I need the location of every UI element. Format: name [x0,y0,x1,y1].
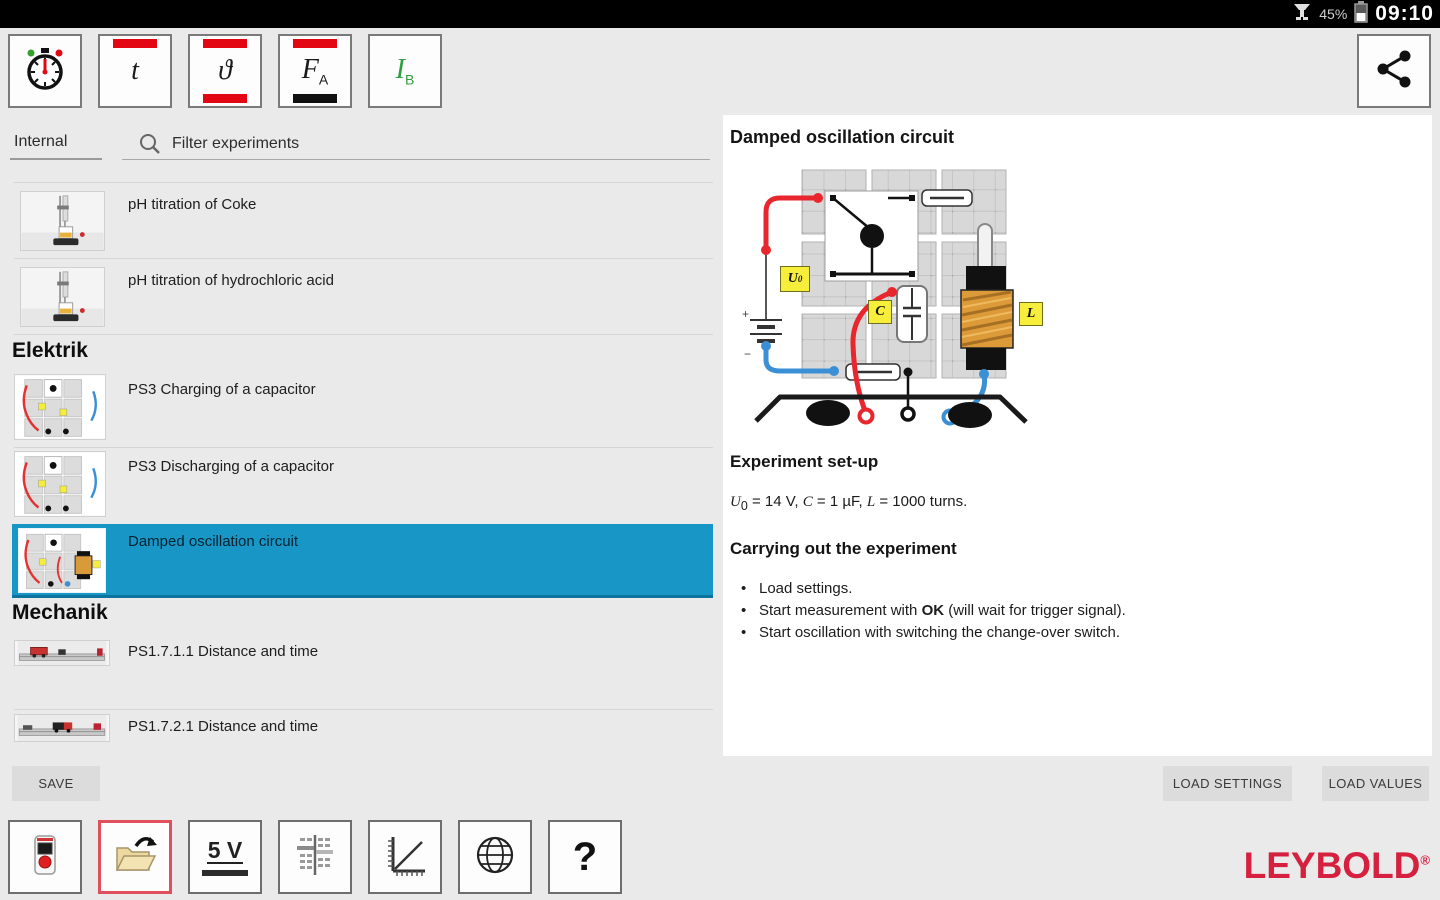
stopwatch-icon [22,46,68,97]
experiment-label: PS3 Charging of a capacitor [128,381,316,398]
experiment-thumbnail [14,374,106,440]
list-item-ph-hcl[interactable]: pH titration of hydrochloric acid [0,259,716,334]
setup-text: U0 = 14 V, C = 1 µF, L = 1000 turns. [730,493,967,513]
sensor-color-bar [203,39,247,48]
help-button[interactable]: ? [548,820,622,894]
quantity-temperature-button[interactable]: ϑ [188,34,262,108]
list-item-charging-capacitor[interactable]: PS3 Charging of a capacitor [0,371,716,447]
quantity-time-button[interactable]: t [98,34,172,108]
circuit-label-l: L [1019,302,1043,326]
sensor-color-bar [293,94,337,103]
power-supply-button[interactable]: 5 V [188,820,262,894]
sensor-color-bar [203,94,247,103]
source-tab-internal[interactable]: Internal [14,133,67,151]
circuit-label-c: C [868,300,892,324]
quantity-force-button[interactable]: FA [278,34,352,108]
experiment-thumbnail [20,191,105,251]
section-header-elektrik: Elektrik [12,339,88,363]
instruction-item: Start measurement with OK (will wait for… [737,600,1397,622]
device-button[interactable] [8,820,82,894]
search-icon [138,132,162,161]
status-cluster: 45% 09:10 [1292,0,1434,28]
svg-text:−: − [744,347,751,361]
list-item-ph-coke[interactable]: pH titration of Coke [0,183,716,258]
quantity-current-button[interactable]: IB [368,34,442,108]
experiment-label: PS3 Discharging of a capacitor [128,458,334,475]
carrying-heading: Carrying out the experiment [730,539,957,559]
sensor-color-bar [113,39,157,48]
leybold-logo: LEYBOLD® [1240,845,1430,887]
share-button[interactable] [1357,34,1431,108]
settings-button[interactable] [278,820,352,894]
circuit-label-u0: U0 [780,266,810,292]
web-button[interactable] [458,820,532,894]
stopwatch-button[interactable] [8,34,82,108]
save-button[interactable]: SAVE [12,766,100,801]
experiment-thumbnail [18,528,106,593]
load-values-button[interactable]: LOAD VALUES [1322,766,1429,801]
experiment-label: Damped oscillation circuit [128,533,298,550]
instruction-item: Start oscillation with switching the cha… [737,622,1397,644]
sensor-color-bar [293,39,337,48]
instruction-list: Load settings. Start measurement with OK… [737,578,1397,644]
cast-icon [1292,2,1312,26]
filter-experiments-input[interactable] [172,130,708,158]
experiment-thumbnail [14,714,110,742]
experiment-label: pH titration of hydrochloric acid [128,272,334,289]
quantity-force-label: FA [302,54,328,88]
open-file-button[interactable] [98,820,172,894]
status-bar: 45% 09:10 [0,0,1440,28]
globe-icon [473,833,517,882]
setup-heading: Experiment set-up [730,452,878,472]
battery-icon [1354,1,1368,28]
filter-underline [122,159,710,160]
chart-axes-icon [383,833,427,882]
load-settings-button[interactable]: LOAD SETTINGS [1163,766,1292,801]
detail-title: Damped oscillation circuit [730,127,954,148]
section-header-mechanik: Mechanik [12,601,108,625]
list-item-distance-time-1[interactable]: PS1.7.1.1 Distance and time [0,634,716,709]
help-icon: ? [573,835,597,880]
experiment-thumbnail [14,451,106,517]
svg-text:+: + [742,307,749,321]
list-item-discharging-capacitor[interactable]: PS3 Discharging of a capacitor [0,448,716,523]
circuit-diagram: + − [738,168,1048,448]
adjust-settings-icon [293,833,337,882]
quantity-current-label: IB [396,54,415,88]
share-icon [1373,48,1415,95]
voltage-underline [202,870,248,876]
list-item-damped-oscillation[interactable]: Damped oscillation circuit [12,524,713,598]
list-item-distance-time-2[interactable]: PS1.7.2.1 Distance and time [0,710,716,760]
list-divider [14,334,713,335]
chart-button[interactable] [368,820,442,894]
tab-underline [10,158,102,160]
quantity-temperature-label: ϑ [218,55,232,87]
voltage-label: 5 V [207,838,244,864]
experiment-label: pH titration of Coke [128,196,256,213]
experiment-thumbnail [20,267,105,327]
open-folder-icon [112,833,158,882]
experiment-label: PS1.7.2.1 Distance and time [128,718,318,735]
experiment-label: PS1.7.1.1 Distance and time [128,643,318,660]
battery-percent: 45% [1319,6,1347,22]
app-screen: 45% 09:10 [0,0,1440,900]
mobile-cassy-device-icon [23,833,67,882]
quantity-time-label: t [131,55,139,87]
clock-time: 09:10 [1375,2,1434,26]
voltage-icon: 5 V [202,838,248,876]
experiment-thumbnail [14,640,110,666]
instruction-item: Load settings. [737,578,1397,600]
